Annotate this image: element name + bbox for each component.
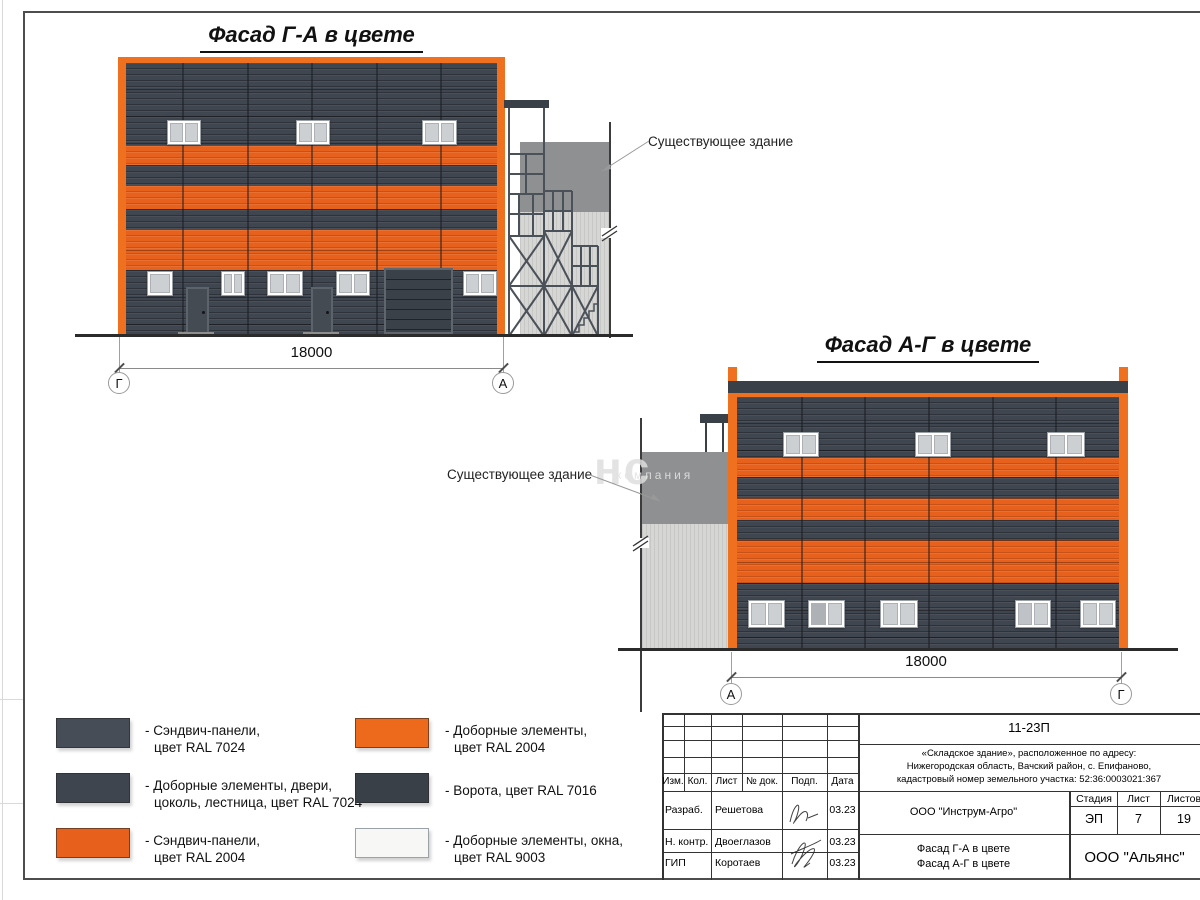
window bbox=[463, 271, 497, 296]
window-pane bbox=[751, 603, 766, 625]
window bbox=[1080, 600, 1116, 628]
titleblock-sheet-name-line1: Фасад Г-А в цвете bbox=[858, 843, 1069, 855]
window-pane bbox=[1083, 603, 1097, 625]
window bbox=[296, 120, 330, 145]
titleblock-line bbox=[662, 740, 858, 741]
window-pane bbox=[314, 123, 327, 142]
facade-ga-panels bbox=[126, 63, 497, 335]
titleblock-name: Двоеглазов bbox=[715, 836, 781, 848]
window bbox=[167, 120, 201, 145]
facade-ag-panels bbox=[737, 397, 1119, 650]
window-pane bbox=[1050, 435, 1065, 454]
titleblock-address-line2: Нижегородская область, Вачский район, с.… bbox=[858, 761, 1200, 772]
roof-structure-post bbox=[705, 423, 707, 452]
titleblock-border bbox=[662, 713, 664, 880]
titleblock-sheets-label: Листов bbox=[1160, 793, 1200, 805]
titleblock-col-izm: Изм. bbox=[662, 776, 684, 787]
window-pane bbox=[299, 123, 312, 142]
titleblock-designer-org: ООО "Инструм-Агро" bbox=[858, 806, 1069, 818]
titleblock-line bbox=[858, 834, 1200, 835]
frame-margin-mark bbox=[0, 699, 23, 700]
window-pane bbox=[768, 603, 783, 625]
titleblock-line bbox=[1069, 806, 1200, 807]
window-pane bbox=[786, 435, 800, 454]
window bbox=[147, 271, 173, 296]
dimension-line bbox=[731, 677, 1121, 678]
window bbox=[880, 600, 918, 628]
window bbox=[915, 432, 951, 457]
entrance-door bbox=[311, 287, 333, 334]
panel-joint bbox=[864, 397, 866, 650]
window-pane bbox=[811, 603, 826, 625]
panel-joint bbox=[376, 63, 378, 335]
legend-swatch-sandwich-ral2004 bbox=[56, 828, 130, 858]
window bbox=[1015, 600, 1051, 628]
legend-swatch-trim-ral2004 bbox=[355, 718, 429, 748]
ground-line bbox=[618, 648, 1178, 651]
window-pane bbox=[425, 123, 439, 142]
legend-swatch-windows-ral9003 bbox=[355, 828, 429, 858]
window-pane bbox=[918, 435, 932, 454]
leader-line bbox=[595, 138, 651, 176]
titleblock-address-line1: «Складское здание», расположенное по адр… bbox=[858, 748, 1200, 759]
window bbox=[221, 271, 245, 296]
window bbox=[748, 600, 785, 628]
titleblock-role: Н. контр. bbox=[665, 836, 710, 848]
titleblock-col-data: Дата bbox=[827, 776, 858, 787]
window-pane bbox=[224, 274, 232, 293]
titleblock-line bbox=[662, 829, 858, 830]
legend-label: - Ворота, цвет RAL 7016 bbox=[445, 782, 597, 799]
existing-building-note: Существующее здание bbox=[648, 134, 793, 149]
titleblock-stage-label: Стадия bbox=[1071, 793, 1117, 805]
window-pane bbox=[170, 123, 183, 142]
axis-marker: Г bbox=[1110, 683, 1132, 705]
legend-swatch-sandwich-ral7024 bbox=[56, 718, 130, 748]
signature-scribbles bbox=[783, 792, 826, 878]
titleblock-date: 03.23 bbox=[827, 857, 858, 869]
window bbox=[336, 271, 370, 296]
door-handle bbox=[326, 311, 329, 314]
roof-structure-post bbox=[722, 423, 724, 452]
leader-line bbox=[588, 472, 666, 508]
existing-building-note: Существующее здание bbox=[447, 467, 592, 482]
frame-outer-left bbox=[2, 0, 3, 900]
facade-ag-building bbox=[728, 367, 1128, 650]
panel-joint bbox=[182, 63, 184, 335]
window bbox=[422, 120, 457, 145]
titleblock-date: 03.23 bbox=[827, 836, 858, 848]
titleblock-stage-value: ЭП bbox=[1071, 812, 1117, 826]
door-handle bbox=[202, 311, 205, 314]
legend-label: - Доборные элементы,цвет RAL 2004 bbox=[445, 722, 587, 756]
frame-margin-mark bbox=[0, 803, 23, 804]
axis-marker: А bbox=[720, 683, 742, 705]
titleblock-role: Разраб. bbox=[665, 804, 710, 816]
window-pane bbox=[802, 435, 816, 454]
titleblock-name: Решетова bbox=[715, 804, 781, 816]
entrance-door bbox=[186, 287, 209, 334]
titleblock-name: Коротаев bbox=[715, 857, 781, 869]
legend-label: - Сэндвич-панели,цвет RAL 7024 bbox=[145, 722, 260, 756]
drawing-sheet: Фасад Г-А в цвете bbox=[0, 0, 1200, 900]
titleblock-sheet-label: Лист bbox=[1117, 793, 1160, 805]
titleblock-sheet-value: 7 bbox=[1117, 812, 1160, 826]
facade-ga-title: Фасад Г-А в цвете bbox=[118, 22, 505, 53]
titleblock-sheets-value: 19 bbox=[1160, 812, 1200, 826]
panel-joint bbox=[247, 63, 249, 335]
window-pane bbox=[481, 274, 494, 293]
axis-marker: Г bbox=[108, 372, 130, 394]
titleblock-col-kol: Кол. bbox=[684, 776, 711, 787]
titleblock-doc-number: 11-23П bbox=[858, 720, 1200, 735]
window-pane bbox=[441, 123, 455, 142]
window-pane bbox=[1018, 603, 1032, 625]
titleblock-role: ГИП bbox=[665, 857, 710, 869]
window-pane bbox=[1034, 603, 1048, 625]
window-pane bbox=[286, 274, 300, 293]
parapet-flashing bbox=[728, 381, 1128, 393]
panel-joint bbox=[992, 397, 994, 650]
corner-trim bbox=[1119, 367, 1128, 650]
legend-swatch-gate-ral7016 bbox=[355, 773, 429, 803]
facade-ag-title: Фасад А-Г в цвете bbox=[728, 332, 1128, 363]
corner-trim bbox=[728, 367, 737, 650]
axis-marker: А bbox=[492, 372, 514, 394]
legend-label: - Доборные элементы, двери,цоколь, лестн… bbox=[145, 777, 362, 811]
window-pane bbox=[150, 274, 170, 293]
break-symbol bbox=[632, 534, 649, 552]
titleblock-date: 03.23 bbox=[827, 804, 858, 816]
window-pane bbox=[339, 274, 352, 293]
titleblock-line bbox=[711, 713, 712, 880]
titleblock-org: ООО "Альянс" bbox=[1069, 849, 1200, 866]
window-pane bbox=[270, 274, 284, 293]
titleblock-line bbox=[662, 852, 858, 853]
facade-ga-building bbox=[118, 57, 505, 335]
titleblock-col-list: Лист bbox=[711, 776, 742, 787]
titleblock-line bbox=[662, 773, 858, 774]
break-symbol bbox=[601, 224, 618, 242]
legend-label: - Сэндвич-панели,цвет RAL 2004 bbox=[145, 832, 260, 866]
window-pane bbox=[934, 435, 948, 454]
legend-label: - Доборные элементы, окна,цвет RAL 9003 bbox=[445, 832, 623, 866]
titleblock-col-doc: № док. bbox=[742, 776, 782, 787]
window-pane bbox=[828, 603, 843, 625]
window-pane bbox=[466, 274, 479, 293]
window bbox=[267, 271, 303, 296]
ground-line bbox=[75, 334, 633, 337]
dimension-value: 18000 bbox=[731, 653, 1121, 670]
window-pane bbox=[1067, 435, 1082, 454]
window bbox=[808, 600, 845, 628]
window-pane bbox=[883, 603, 898, 625]
gate bbox=[384, 268, 453, 334]
window bbox=[783, 432, 819, 457]
titleblock-line bbox=[662, 757, 858, 758]
titleblock-address-line3: кадастровый номер земельного участка: 52… bbox=[858, 774, 1200, 785]
window-pane bbox=[1099, 603, 1113, 625]
existing-building-2-lower bbox=[642, 524, 728, 650]
window-pane bbox=[234, 274, 242, 293]
titleblock-line bbox=[662, 726, 858, 727]
window-pane bbox=[185, 123, 198, 142]
legend-swatch-trim-ral7024 bbox=[56, 773, 130, 803]
roof-structure-cap bbox=[700, 414, 730, 423]
frame-top bbox=[23, 11, 1200, 13]
window bbox=[1047, 432, 1085, 457]
titleblock-line bbox=[827, 713, 828, 880]
stair-tower bbox=[503, 96, 603, 338]
dimension-value: 18000 bbox=[119, 344, 504, 361]
frame-left bbox=[23, 11, 25, 880]
frame-bottom bbox=[23, 878, 1200, 880]
window-pane bbox=[900, 603, 915, 625]
titleblock-sheet-name-line2: Фасад А-Г в цвете bbox=[858, 858, 1069, 870]
dimension-line bbox=[119, 368, 504, 369]
window-pane bbox=[354, 274, 367, 293]
titleblock-col-podp: Подп. bbox=[782, 776, 827, 787]
titleblock-line bbox=[662, 791, 1200, 792]
titleblock-line bbox=[858, 744, 1200, 745]
